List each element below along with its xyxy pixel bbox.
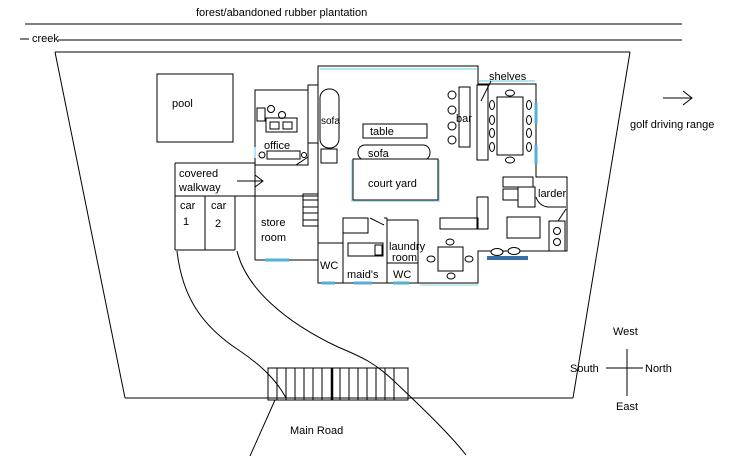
site-environment: forest/abandoned rubber plantation creek…	[20, 7, 714, 456]
family-area	[427, 197, 488, 279]
side-table	[321, 149, 337, 163]
kitchen: larder	[491, 177, 566, 256]
bridge-outline	[268, 368, 408, 400]
sofa-vertical-label: sofa	[321, 116, 340, 127]
car2-label-line1: car	[211, 200, 227, 212]
creek-label: creek	[32, 33, 59, 45]
golf-label: golf driving range	[630, 119, 714, 131]
cabinet-knob-1	[554, 228, 561, 235]
court-yard-label: court yard	[368, 178, 417, 190]
pool-outline	[157, 74, 233, 142]
breakfast-table	[438, 247, 463, 271]
carport: car 1 car 2	[175, 196, 235, 250]
east-window-2	[535, 145, 538, 164]
sofa-horizontal-label: sofa	[368, 148, 390, 160]
table-label: table	[370, 126, 394, 138]
covered-walkway-label-line1: covered	[179, 168, 218, 180]
stairs	[303, 194, 318, 226]
maids-door	[370, 218, 384, 225]
stairs-outline	[303, 194, 318, 226]
store-label-line2: room	[261, 232, 286, 244]
car1-label-line1: car	[180, 200, 196, 212]
bridge-hatching	[277, 368, 394, 400]
kitchen-east-door	[558, 209, 566, 221]
shelves-unit	[477, 85, 488, 160]
kitchen-counter-small	[503, 189, 518, 200]
compass-left-label: South	[570, 363, 599, 375]
east-window-1	[535, 103, 538, 124]
main-road-label: Main Road	[290, 425, 343, 437]
pool-label: pool	[172, 98, 193, 110]
dining-area	[490, 90, 532, 163]
kitchen-counter-top	[503, 177, 533, 187]
car1-label-line2: 1	[183, 216, 189, 228]
stairs-treads	[303, 200, 318, 220]
breakfast-chairs	[427, 239, 473, 279]
covered-walkway-label-line2: walkway	[178, 182, 221, 194]
dining-chairs	[490, 90, 532, 163]
store-label-line1: store	[261, 217, 285, 229]
court-yard: court yard	[352, 159, 439, 201]
office-desk	[257, 108, 297, 132]
office-door	[296, 157, 308, 165]
l-counter-horizontal	[440, 218, 478, 229]
bar-stools	[448, 91, 456, 144]
kitchen-cabinet	[549, 221, 565, 251]
maids-pillow	[375, 245, 382, 255]
forest-label: forest/abandoned rubber plantation	[196, 7, 367, 19]
store-room: store room	[255, 217, 318, 260]
lounge: sofa table sofa court yard	[320, 89, 439, 201]
pool: pool	[157, 74, 233, 142]
road-left-edge	[250, 400, 275, 456]
driveway-left-edge	[177, 251, 286, 398]
bar-label: bar	[456, 113, 472, 125]
office-chairs	[268, 106, 286, 119]
creek: creek	[20, 24, 682, 45]
car2-label-line2: 2	[215, 218, 221, 230]
boundary-right	[573, 52, 630, 398]
site-plan-drawing: forest/abandoned rubber plantation creek…	[0, 0, 737, 456]
l-counter-vertical	[477, 197, 488, 229]
maids-closet	[343, 218, 368, 233]
office-side-table	[259, 151, 307, 159]
wc-left-label: WC	[320, 260, 338, 272]
service-rooms: WC maid's laundry room WC	[318, 218, 426, 283]
office: office	[255, 85, 318, 165]
covered-walkway: covered walkway	[175, 163, 318, 260]
compass-right-label: North	[645, 363, 672, 375]
compass: West South North East	[570, 326, 672, 413]
dining-table	[497, 97, 523, 155]
garage-wing: covered walkway car 1 car 2 store room	[175, 163, 318, 260]
larder-label: larder	[538, 188, 566, 200]
kitchen-counter-corner	[518, 187, 535, 207]
boundary-left	[55, 52, 125, 398]
entrance-bridge	[268, 368, 408, 400]
driveway: Main Road	[177, 251, 466, 456]
maids-label: maid's	[347, 269, 379, 281]
compass-top-label: West	[613, 326, 638, 338]
floor-plan-canvas: forest/abandoned rubber plantation creek…	[0, 0, 737, 456]
golf-driving-range: golf driving range	[630, 91, 714, 131]
shelves-label: shelves	[489, 71, 527, 83]
larder: larder	[536, 188, 566, 207]
laundry-label-line2: room	[392, 252, 417, 264]
wc-bottom-label: WC	[393, 269, 411, 281]
cabinet-knob-2	[554, 239, 561, 246]
office-label: office	[264, 140, 290, 152]
compass-bottom-label: East	[616, 401, 638, 413]
office-east-wall	[308, 85, 318, 143]
driveway-right-edge	[237, 251, 466, 455]
kitchen-island	[507, 217, 540, 238]
